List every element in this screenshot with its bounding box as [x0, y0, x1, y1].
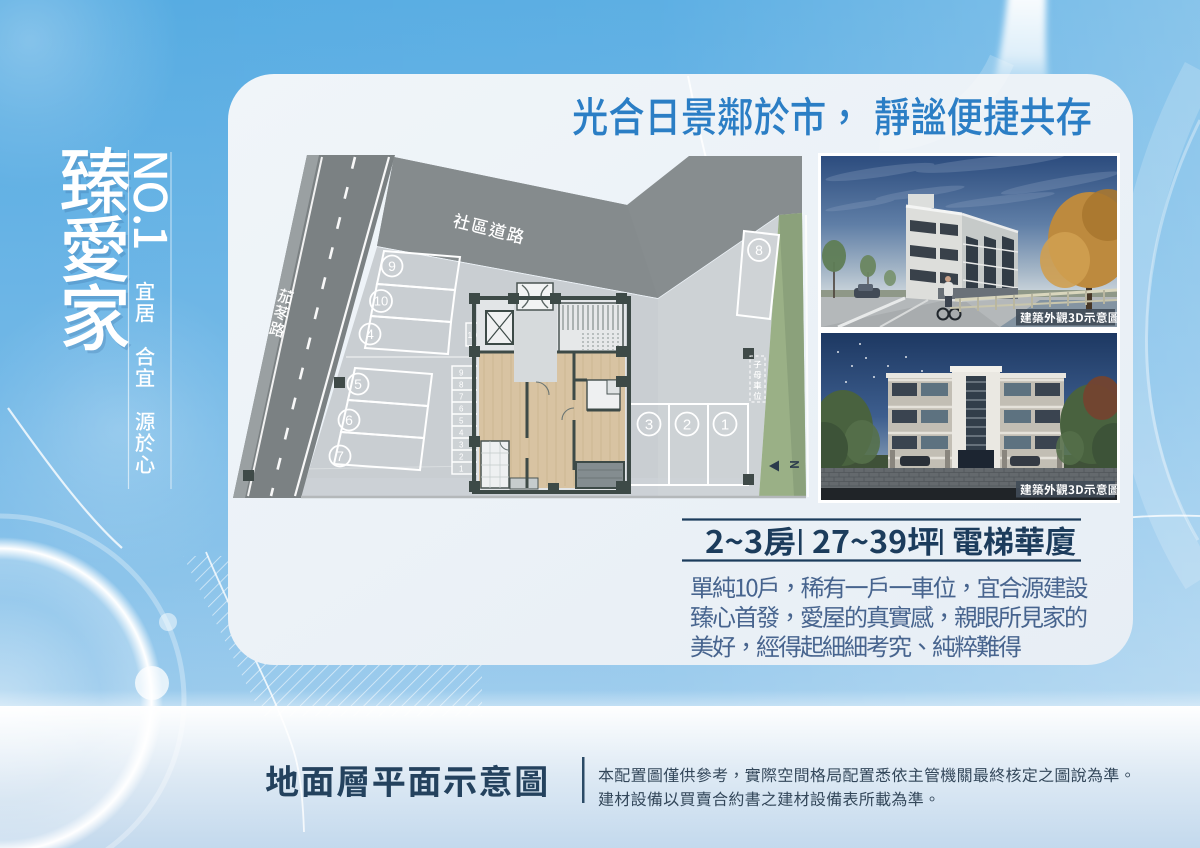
svg-text:7: 7	[336, 448, 344, 464]
svg-text:5: 5	[354, 376, 362, 392]
svg-text:5: 5	[459, 417, 464, 426]
svg-text:2: 2	[459, 453, 464, 462]
svg-text:1: 1	[459, 465, 464, 474]
svg-text:9: 9	[388, 258, 396, 274]
svg-text:3: 3	[645, 416, 653, 433]
svg-text:3: 3	[459, 441, 464, 450]
svg-text:4: 4	[459, 429, 464, 438]
svg-text:10: 10	[374, 294, 388, 309]
svg-text:7: 7	[459, 393, 464, 402]
svg-text:2: 2	[683, 416, 691, 433]
svg-text:6: 6	[345, 412, 353, 428]
svg-text:8: 8	[459, 381, 464, 390]
svg-text:6: 6	[459, 405, 464, 414]
svg-text:4: 4	[366, 326, 374, 342]
svg-text:9: 9	[459, 369, 464, 378]
svg-text:1: 1	[721, 416, 729, 433]
svg-text:8: 8	[755, 242, 763, 258]
